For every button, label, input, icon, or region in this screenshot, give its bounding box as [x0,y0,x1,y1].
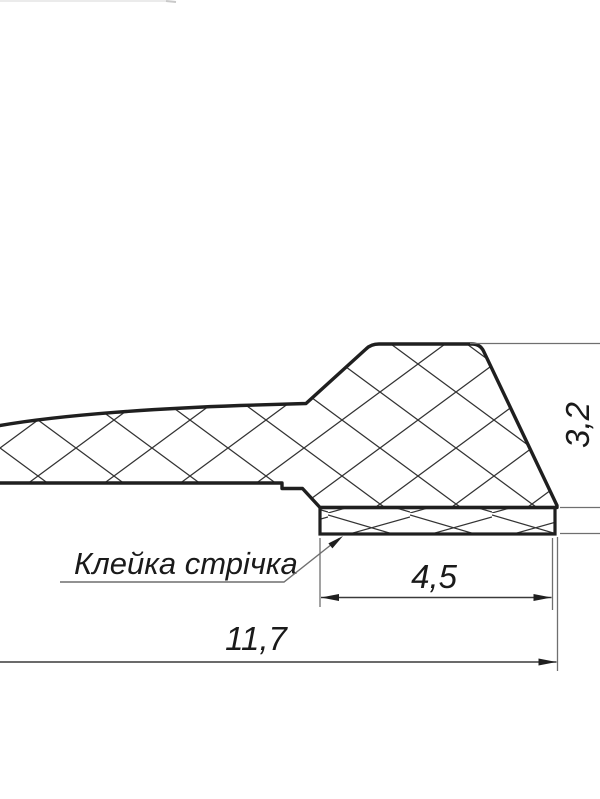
callout-adhesive-tape: Клейка стрічка [60,536,343,582]
drawing-canvas: 4,5 11,7 3,2 Клейка стрічка [0,0,600,799]
dim-label-tape-width: 4,5 [411,558,458,595]
technical-drawing: 4,5 11,7 3,2 Клейка стрічка [0,0,600,799]
dim-label-overall-length: 11,7 [225,620,288,657]
dimension-overall-length: 11,7 [0,620,557,666]
adhesive-tape-strip [320,508,555,535]
dimension-profile-height: 3,2 [559,402,596,448]
dim-arrow-right-icon [539,659,557,666]
dim-arrow-left-icon [321,594,339,601]
dim-arrow-right-icon [534,594,552,601]
dimension-tape-width: 4,5 [321,558,552,601]
leader-arrow-icon [328,536,343,548]
seal-profile-body [0,344,557,508]
dim-label-profile-height: 3,2 [559,402,596,448]
cropped-artifact-mark [166,1,176,2]
callout-label: Клейка стрічка [74,546,298,581]
